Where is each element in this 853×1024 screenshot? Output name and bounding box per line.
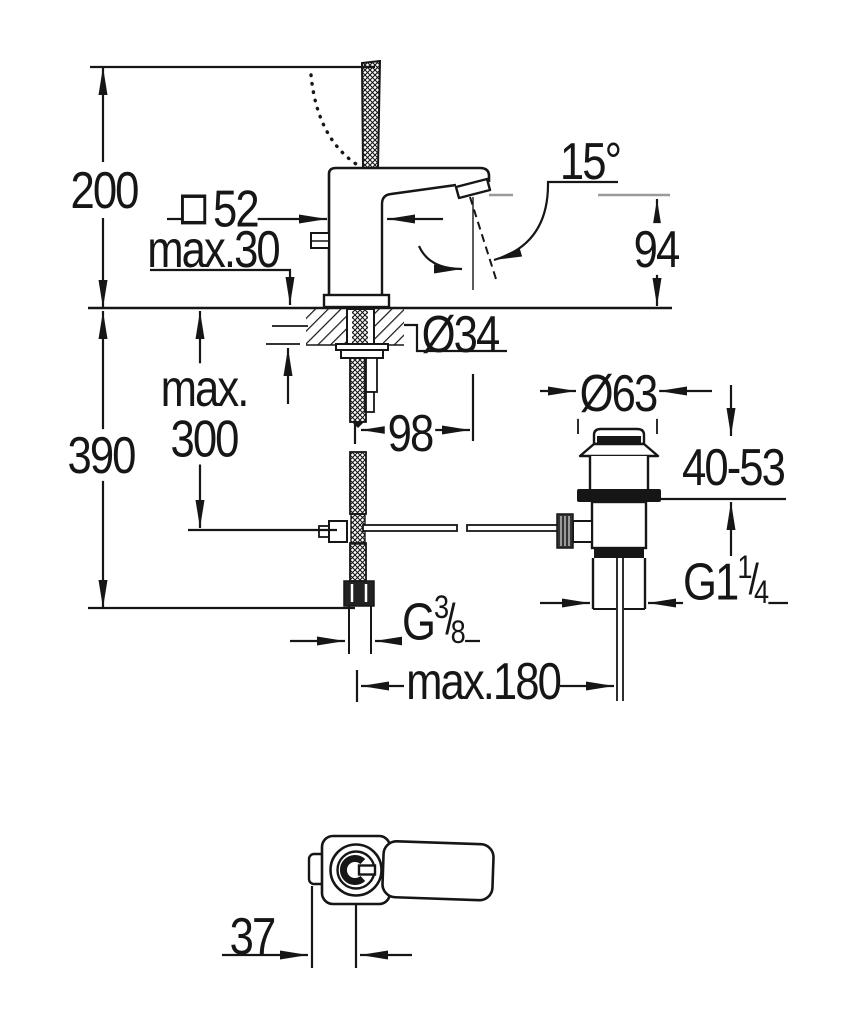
waste-flange-ring (577, 489, 661, 502)
waste-valve-assembly (557, 378, 661, 701)
swing-arc (419, 246, 462, 269)
dim-deck-thickness: max.30 (144, 223, 281, 275)
pop-up-rod-left (363, 525, 457, 531)
pull-cord-dotted-path (311, 75, 356, 164)
waste-valve-body (592, 502, 646, 548)
aerator (456, 179, 490, 198)
mounting-deck-section (88, 308, 672, 345)
dim-spout-angle: 15° (557, 135, 623, 187)
dim-total-height: 200 (68, 164, 141, 216)
pop-up-rod-right (467, 525, 561, 531)
dim-pull-rod: max. 300 (158, 363, 251, 464)
dim-waste-flange-diameter: Ø63 (577, 367, 660, 419)
technical-drawing-canvas: 200 52 max.30 15° 94 Ø34 max. 300 390 98… (0, 0, 853, 1024)
supply-connector-nut (344, 581, 374, 606)
dim-waste-height-range: 40-53 (679, 441, 787, 493)
supply-hose-upper (350, 358, 366, 422)
faucet-side-view (311, 61, 496, 307)
lever-handle (382, 841, 494, 901)
dim-under-deck-height: 390 (65, 429, 138, 481)
base-plate (324, 295, 389, 307)
dim-handle-offset: 37 (227, 910, 278, 962)
dim-supply-thread: G3/8 (402, 596, 465, 648)
dim-waste-thread: G11/4 (683, 556, 768, 608)
rod-cross-fitting (329, 521, 347, 542)
water-stream-dashed (470, 197, 496, 279)
dim-hole-diameter: Ø34 (419, 308, 502, 360)
dim-spout-reach: 98 (385, 407, 436, 459)
drawing-linework (0, 0, 853, 1024)
dim-center-distance: max.180 (403, 655, 563, 707)
supply-hose-middle (350, 452, 366, 514)
supply-hose-lower (350, 543, 366, 581)
handle-top-view (309, 836, 494, 904)
dim-spout-height: 94 (631, 223, 682, 275)
